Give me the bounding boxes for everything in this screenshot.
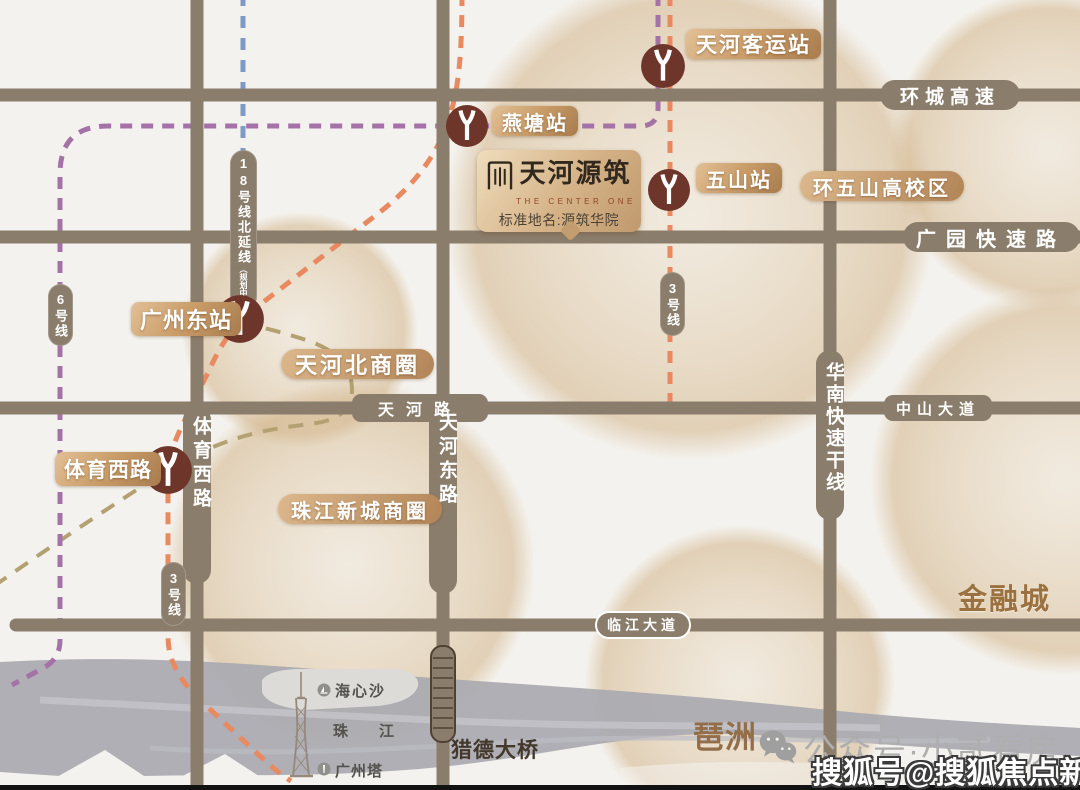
location-map: 环城高速 广园快速路 天河路 中山大道 临江大道 体育西路 天河东路 华南快速干… <box>0 0 1080 790</box>
station-label-tiyuxilu: 体育西路 <box>55 452 161 486</box>
road-label-huanan-expwy: 华南快速干线 <box>820 362 847 494</box>
wechat-icon <box>757 727 799 767</box>
project-name-en: THE CENTER ONE <box>477 197 641 206</box>
station-label-yantang: 燕塘站 <box>492 106 578 136</box>
canton-tower-label: 广州塔 <box>335 760 383 781</box>
liede-bridge-label: 猎德大桥 <box>451 734 539 764</box>
pazhou-label: 琶洲 <box>693 712 757 757</box>
line3-west-pill: 3号线 <box>161 562 186 626</box>
road-label-tianhe-rd: 天河路 <box>356 396 484 420</box>
road-label-linjiang-ave: 临江大道 <box>598 615 688 635</box>
road-label-huancheng: 环城高速 <box>883 83 1017 107</box>
district-label-wushan-colleges: 环五山高校区 <box>800 171 964 201</box>
project-logo-card: 天河源筑 THE CENTER ONE 标准地名:源筑华院 <box>477 150 641 232</box>
line18-pill: 18号线北延线（规划中） <box>230 150 257 310</box>
line18-name: 18号线北延线 <box>236 156 251 265</box>
road-label-tianhedong-rd: 天河东路 <box>433 412 460 508</box>
sohu-watermark: 搜狐号@搜狐焦点新余站 <box>812 748 1080 790</box>
district-label-tianhebei: 天河北商圈 <box>281 349 434 379</box>
station-label-tianhe-coach: 天河客运站 <box>686 29 821 59</box>
station-label-wushan: 五山站 <box>696 163 782 193</box>
gate-logo-icon <box>486 161 514 196</box>
financial-city-label: 金融城 <box>958 576 1051 618</box>
road-label-guangyuan: 广园快速路 <box>906 224 1076 250</box>
line6-pill: 6号线 <box>48 284 73 346</box>
pearl-river-label: 珠 江 <box>333 720 402 741</box>
canton-tower-marker-icon <box>317 762 331 776</box>
project-name: 天河源筑 <box>519 161 631 187</box>
metro-station-icon-wushan <box>647 168 691 212</box>
metro-station-icon-yantang <box>445 104 489 148</box>
project-standard-address: 标准地名:源筑华院 <box>477 210 641 230</box>
liede-bridge-icon <box>431 646 455 742</box>
line3-east-pill: 3号线 <box>660 272 685 336</box>
road-label-zhongshan-ave: 中山大道 <box>886 397 990 419</box>
station-label-guangzhou-east: 广州东站 <box>131 302 241 336</box>
haixinsha-icon <box>317 683 331 697</box>
metro-station-icon-tianhe-coach <box>640 43 686 89</box>
district-label-zhujiang-newtown: 珠江新城商圈 <box>278 494 442 524</box>
haixinsha-label: 海心沙 <box>335 680 386 701</box>
